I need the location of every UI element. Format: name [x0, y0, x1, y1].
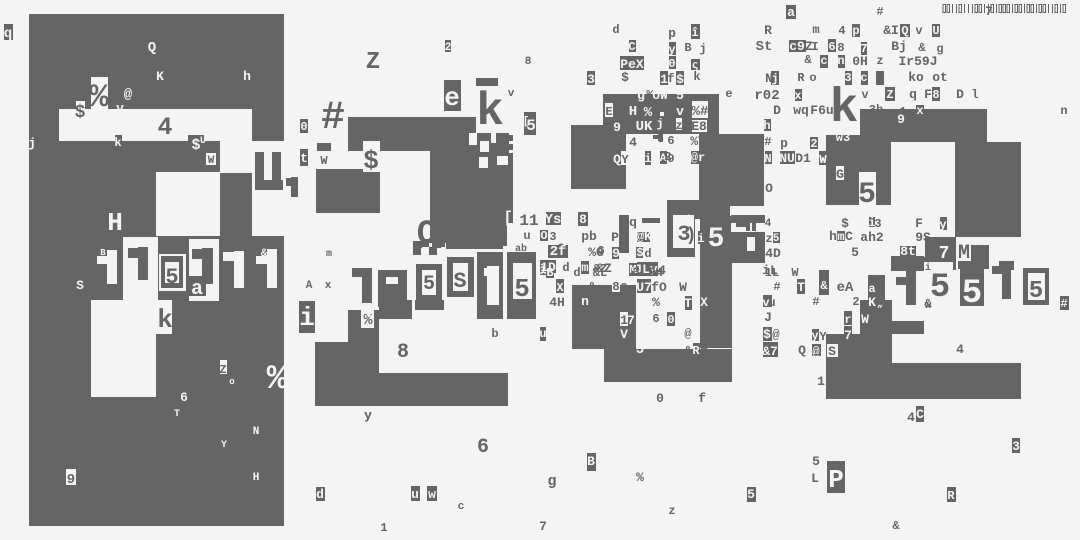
- svg-text:7: 7: [844, 328, 852, 343]
- svg-text:U7: U7: [636, 280, 652, 295]
- svg-text:i: i: [644, 152, 651, 166]
- svg-text:3: 3: [874, 217, 881, 231]
- svg-text:3L94: 3L94: [632, 265, 663, 280]
- svg-text:@: @: [124, 87, 133, 103]
- svg-text:6: 6: [477, 436, 489, 459]
- svg-text:5: 5: [636, 342, 644, 358]
- svg-text:@K: @K: [636, 229, 652, 244]
- svg-text:d: d: [316, 487, 324, 502]
- svg-text:m: m: [581, 261, 588, 275]
- svg-text:w: w: [862, 262, 869, 274]
- svg-text:î: î: [691, 26, 698, 40]
- svg-text:h: h: [829, 229, 837, 244]
- svg-text:z: z: [765, 232, 772, 246]
- svg-text:w: w: [428, 487, 436, 502]
- svg-text:6: 6: [180, 390, 188, 405]
- svg-text:&: &: [588, 280, 596, 294]
- svg-text:$: $: [763, 327, 771, 342]
- svg-text:@: @: [772, 328, 779, 342]
- svg-text:p: p: [780, 136, 788, 151]
- svg-text:4: 4: [956, 342, 964, 357]
- svg-text:0H: 0H: [852, 54, 868, 69]
- svg-text:7: 7: [627, 313, 635, 328]
- svg-text:g: g: [637, 88, 645, 103]
- svg-text:5: 5: [930, 269, 950, 307]
- svg-text:G: G: [836, 167, 844, 182]
- svg-text:8: 8: [579, 212, 587, 227]
- svg-text:1: 1: [380, 521, 387, 535]
- svg-text:5: 5: [165, 265, 178, 290]
- svg-text:ot: ot: [932, 70, 948, 85]
- svg-text:9: 9: [67, 472, 75, 488]
- svg-text:f: f: [698, 391, 706, 406]
- svg-text:e: e: [444, 83, 460, 113]
- svg-text:5: 5: [676, 88, 684, 103]
- svg-text:y: y: [364, 408, 372, 423]
- svg-text:4: 4: [907, 410, 915, 425]
- svg-text:Z: Z: [366, 49, 380, 76]
- svg-text:&Z: &Z: [593, 262, 607, 276]
- svg-text:i: i: [299, 303, 315, 333]
- svg-text:NU: NU: [779, 151, 795, 166]
- svg-text:b: b: [491, 327, 498, 341]
- svg-text:L: L: [811, 471, 819, 486]
- svg-text:5: 5: [514, 274, 530, 304]
- svg-text:S: S: [453, 269, 466, 294]
- svg-text:j: j: [28, 136, 36, 151]
- svg-text:%: %: [89, 79, 109, 116]
- svg-text:A: A: [306, 280, 313, 292]
- svg-text:3: 3: [587, 72, 595, 87]
- svg-text:&: &: [918, 41, 926, 55]
- svg-text:n: n: [1060, 104, 1067, 118]
- svg-text:#: #: [1060, 297, 1067, 311]
- svg-text:N: N: [253, 426, 260, 438]
- svg-text:x: x: [794, 89, 801, 103]
- svg-text:v: v: [676, 104, 684, 119]
- svg-text:H: H: [107, 208, 123, 238]
- svg-text:R: R: [692, 344, 700, 358]
- svg-text:1: 1: [817, 374, 825, 389]
- svg-text:h: h: [763, 119, 770, 133]
- svg-text:#: #: [812, 295, 819, 309]
- svg-text:8: 8: [612, 280, 619, 294]
- svg-text:a: a: [191, 278, 203, 301]
- svg-text:0: 0: [668, 57, 675, 71]
- svg-text:H: H: [253, 472, 260, 484]
- svg-text:D1: D1: [795, 151, 811, 166]
- svg-text:j: j: [699, 42, 706, 56]
- svg-text:C: C: [628, 40, 635, 54]
- svg-text:I: I: [811, 40, 818, 54]
- svg-text:#: #: [700, 344, 707, 358]
- svg-text:3: 3: [549, 230, 556, 244]
- svg-text:2b: 2b: [681, 214, 693, 226]
- svg-text:X: X: [556, 281, 564, 295]
- svg-text:7: 7: [860, 42, 867, 56]
- svg-text:11: 11: [519, 212, 538, 230]
- svg-text:u: u: [523, 229, 530, 243]
- svg-text:$: $: [676, 72, 684, 87]
- svg-text:1D: 1D: [540, 260, 556, 275]
- svg-text:&7: &7: [762, 344, 778, 359]
- svg-text:N: N: [764, 152, 771, 166]
- svg-text:$: $: [636, 246, 643, 260]
- svg-text:&: &: [924, 297, 932, 311]
- svg-text:n: n: [837, 54, 844, 68]
- svg-text:u: u: [411, 487, 419, 502]
- svg-text:%#: %#: [692, 104, 709, 120]
- svg-text:v: v: [915, 24, 922, 38]
- svg-text:Y: Y: [819, 330, 827, 344]
- svg-text:Bj: Bj: [891, 39, 907, 54]
- svg-text:c: c: [820, 54, 827, 68]
- svg-text:&: &: [820, 279, 828, 293]
- svg-text:0: 0: [300, 120, 307, 134]
- svg-text:m: m: [326, 249, 332, 260]
- svg-text:l: l: [971, 88, 978, 102]
- svg-text:e: e: [725, 87, 732, 101]
- svg-text:R: R: [947, 489, 955, 503]
- svg-text:T: T: [174, 409, 180, 420]
- svg-text:K: K: [156, 69, 164, 84]
- svg-text:4H: 4H: [549, 295, 565, 310]
- svg-text:k: k: [830, 82, 859, 136]
- svg-text:@: @: [812, 345, 819, 359]
- svg-text:c9: c9: [789, 39, 805, 54]
- svg-text:4: 4: [629, 135, 637, 150]
- svg-text:9S: 9S: [915, 230, 931, 245]
- svg-text:&: &: [804, 53, 812, 67]
- svg-text:o: o: [229, 377, 234, 387]
- svg-text:": ": [715, 250, 722, 262]
- svg-text:Q: Q: [613, 152, 621, 167]
- svg-text:C: C: [916, 407, 924, 422]
- svg-text:7: 7: [939, 244, 950, 264]
- svg-text:4D: 4D: [765, 246, 781, 261]
- svg-text:5: 5: [962, 275, 982, 313]
- svg-text:R: R: [797, 71, 805, 85]
- svg-text:%Y: %Y: [690, 134, 706, 149]
- svg-text:d: d: [612, 23, 619, 37]
- svg-text:%: %: [636, 470, 644, 485]
- svg-text:i: i: [925, 262, 931, 274]
- svg-text:Ir59J: Ir59J: [898, 54, 937, 69]
- svg-text:Q: Q: [148, 40, 156, 56]
- svg-text:j: j: [656, 117, 663, 131]
- svg-text:#: #: [321, 96, 345, 141]
- svg-text:3: 3: [1012, 439, 1020, 454]
- svg-text:p: p: [852, 24, 859, 38]
- svg-text:v: v: [508, 88, 515, 100]
- svg-text:k: k: [114, 136, 121, 150]
- svg-text:T: T: [797, 280, 805, 295]
- svg-text:F: F: [915, 216, 923, 231]
- svg-text:V: V: [620, 327, 628, 342]
- svg-text:5: 5: [1029, 278, 1043, 305]
- svg-text:k: k: [693, 70, 700, 84]
- svg-text:2: 2: [445, 42, 452, 54]
- svg-text:5: 5: [747, 487, 755, 502]
- svg-text:&: &: [261, 248, 268, 260]
- svg-text:W: W: [208, 155, 215, 167]
- svg-text:oW: oW: [652, 88, 668, 103]
- svg-text:W: W: [320, 154, 328, 168]
- svg-text:w3: w3: [836, 131, 850, 145]
- svg-text:X: X: [700, 295, 708, 310]
- svg-text:3b: 3b: [869, 103, 883, 117]
- svg-text:4: 4: [157, 113, 172, 142]
- svg-text:%: %: [267, 361, 288, 399]
- svg-text:z: z: [701, 331, 708, 343]
- svg-text:Z: Z: [886, 88, 893, 102]
- svg-text:q: q: [4, 26, 12, 42]
- svg-text:St: St: [756, 39, 773, 55]
- svg-text:eA: eA: [837, 280, 854, 296]
- svg-text:ah2: ah2: [860, 230, 884, 245]
- svg-text:S: S: [76, 278, 84, 293]
- svg-text:n: n: [581, 294, 589, 309]
- svg-text:P: P: [828, 465, 844, 495]
- svg-text:D: D: [773, 103, 781, 118]
- svg-text:W: W: [861, 312, 869, 327]
- svg-text:o: o: [809, 71, 816, 85]
- svg-text:E8: E8: [691, 119, 707, 134]
- svg-text:9: 9: [897, 112, 905, 127]
- svg-text:T: T: [684, 296, 692, 311]
- svg-text:x: x: [628, 283, 635, 295]
- svg-text:E8: E8: [676, 152, 690, 166]
- svg-text:d: d: [573, 266, 580, 280]
- svg-text:v: v: [861, 88, 868, 102]
- svg-text:5: 5: [773, 233, 780, 245]
- svg-text:a: a: [787, 5, 795, 20]
- svg-text:UK: UK: [636, 119, 653, 135]
- svg-text:[: [: [523, 116, 530, 128]
- svg-text:z: z: [668, 504, 675, 518]
- svg-text:Z: Z: [219, 363, 226, 377]
- svg-text:1: 1: [877, 71, 884, 85]
- svg-text:c: c: [458, 501, 465, 513]
- svg-text:W: W: [819, 153, 827, 167]
- svg-text:B: B: [587, 454, 595, 469]
- svg-text:2: 2: [664, 150, 671, 164]
- svg-text:%: %: [652, 295, 660, 310]
- svg-text:S: S: [828, 344, 836, 359]
- svg-text:8t: 8t: [900, 244, 916, 259]
- svg-text:$: $: [621, 70, 629, 85]
- svg-text:a: a: [868, 282, 875, 296]
- svg-text:): ): [686, 226, 697, 246]
- svg-text:6: 6: [652, 312, 659, 326]
- svg-text:B: B: [100, 248, 106, 258]
- svg-text:B: B: [684, 41, 691, 55]
- svg-text:v: v: [116, 101, 124, 116]
- svg-text:P: P: [611, 230, 619, 245]
- svg-text:1: 1: [700, 248, 708, 263]
- svg-text:„: „: [877, 299, 883, 310]
- svg-text:r02: r02: [754, 88, 779, 104]
- svg-text:z: z: [876, 54, 883, 68]
- svg-text:8: 8: [932, 88, 939, 102]
- svg-text:u: u: [768, 296, 775, 310]
- svg-text:Ys: Ys: [545, 212, 562, 228]
- svg-text:0: 0: [667, 313, 674, 327]
- svg-text:2f: 2f: [550, 244, 567, 260]
- svg-text:m: m: [837, 230, 844, 244]
- svg-text:d: d: [562, 261, 569, 275]
- svg-text:$: $: [363, 146, 379, 176]
- svg-text:f: f: [667, 72, 674, 86]
- svg-text:%: %: [365, 310, 371, 320]
- svg-text:5: 5: [812, 454, 820, 469]
- svg-text:9: 9: [612, 246, 620, 261]
- svg-text:y: y: [811, 329, 818, 343]
- svg-text:#: #: [764, 135, 771, 149]
- svg-text:C: C: [845, 229, 853, 244]
- svg-text:y: y: [668, 43, 675, 57]
- svg-text:8: 8: [837, 41, 844, 55]
- svg-text:5: 5: [851, 245, 859, 260]
- svg-text:&I: &I: [883, 23, 899, 38]
- svg-text:5: 5: [858, 178, 876, 212]
- svg-text:H: H: [629, 104, 637, 120]
- svg-text:t: t: [300, 151, 308, 166]
- svg-text:5: 5: [423, 273, 435, 296]
- svg-text:&: &: [892, 519, 900, 533]
- svg-text:@r: @r: [691, 151, 705, 165]
- svg-text:#: #: [773, 280, 780, 294]
- svg-text:O: O: [765, 181, 773, 196]
- svg-text:G: G: [620, 281, 627, 295]
- svg-text:J: J: [764, 310, 772, 325]
- svg-text:Q: Q: [901, 24, 908, 38]
- svg-text:k: k: [476, 86, 504, 138]
- svg-text:j: j: [771, 72, 778, 86]
- svg-text:#: #: [876, 5, 883, 19]
- svg-text:c: c: [860, 71, 867, 85]
- svg-text:9: 9: [613, 120, 621, 135]
- svg-text:0: 0: [656, 391, 664, 406]
- svg-text:q: q: [909, 87, 917, 102]
- svg-text:x: x: [325, 280, 332, 292]
- svg-text:@: @: [684, 327, 691, 341]
- svg-text:r: r: [844, 313, 851, 327]
- svg-text:O: O: [417, 216, 437, 254]
- svg-text:x: x: [916, 104, 923, 118]
- svg-text:fO: fO: [651, 280, 667, 295]
- svg-text:7: 7: [539, 519, 547, 534]
- svg-text:q: q: [629, 215, 637, 230]
- svg-text:M: M: [958, 242, 970, 265]
- svg-text:Y: Y: [621, 153, 629, 167]
- svg-text:6: 6: [828, 40, 835, 54]
- svg-text:Y: Y: [221, 440, 227, 451]
- svg-text:U: U: [200, 136, 206, 147]
- svg-text:F: F: [924, 87, 932, 102]
- svg-text:8: 8: [525, 56, 532, 68]
- svg-text:&: &: [684, 344, 692, 358]
- svg-text:8: 8: [397, 341, 409, 364]
- svg-text:h: h: [243, 69, 251, 84]
- svg-text:W: W: [679, 280, 687, 295]
- svg-text:4: 4: [838, 24, 845, 38]
- svg-text:u: u: [539, 327, 546, 341]
- svg-text:U: U: [932, 24, 939, 38]
- svg-text:m: m: [812, 23, 819, 37]
- svg-text:K: K: [868, 295, 876, 310]
- svg-text:ko: ko: [908, 70, 924, 85]
- svg-text:7: 7: [985, 4, 993, 19]
- svg-text:g: g: [936, 42, 943, 56]
- svg-text:4: 4: [765, 218, 772, 230]
- svg-text:6: 6: [667, 134, 674, 148]
- svg-text:i: i: [697, 232, 704, 246]
- svg-text:2: 2: [810, 137, 817, 151]
- svg-text:d: d: [699, 281, 706, 295]
- svg-text:pb: pb: [581, 229, 597, 244]
- svg-text:g: g: [547, 473, 556, 490]
- svg-text:Q: Q: [798, 343, 806, 358]
- svg-text:R: R: [764, 23, 772, 38]
- svg-text:ab: ab: [515, 243, 527, 255]
- svg-text:O: O: [540, 229, 547, 243]
- svg-text:p: p: [668, 26, 676, 41]
- svg-text:k: k: [157, 305, 173, 335]
- svg-text:W: W: [791, 266, 799, 280]
- svg-text:$: $: [75, 103, 86, 123]
- svg-text:d: d: [644, 247, 651, 261]
- svg-text:2: 2: [852, 295, 859, 309]
- svg-text:z: z: [675, 119, 682, 133]
- svg-text:D: D: [956, 87, 964, 102]
- svg-text:1L: 1L: [765, 266, 779, 280]
- svg-text:wq: wq: [793, 103, 809, 118]
- svg-text:%G: %G: [588, 245, 604, 260]
- svg-text:E: E: [605, 105, 612, 119]
- svg-text:y: y: [939, 218, 946, 232]
